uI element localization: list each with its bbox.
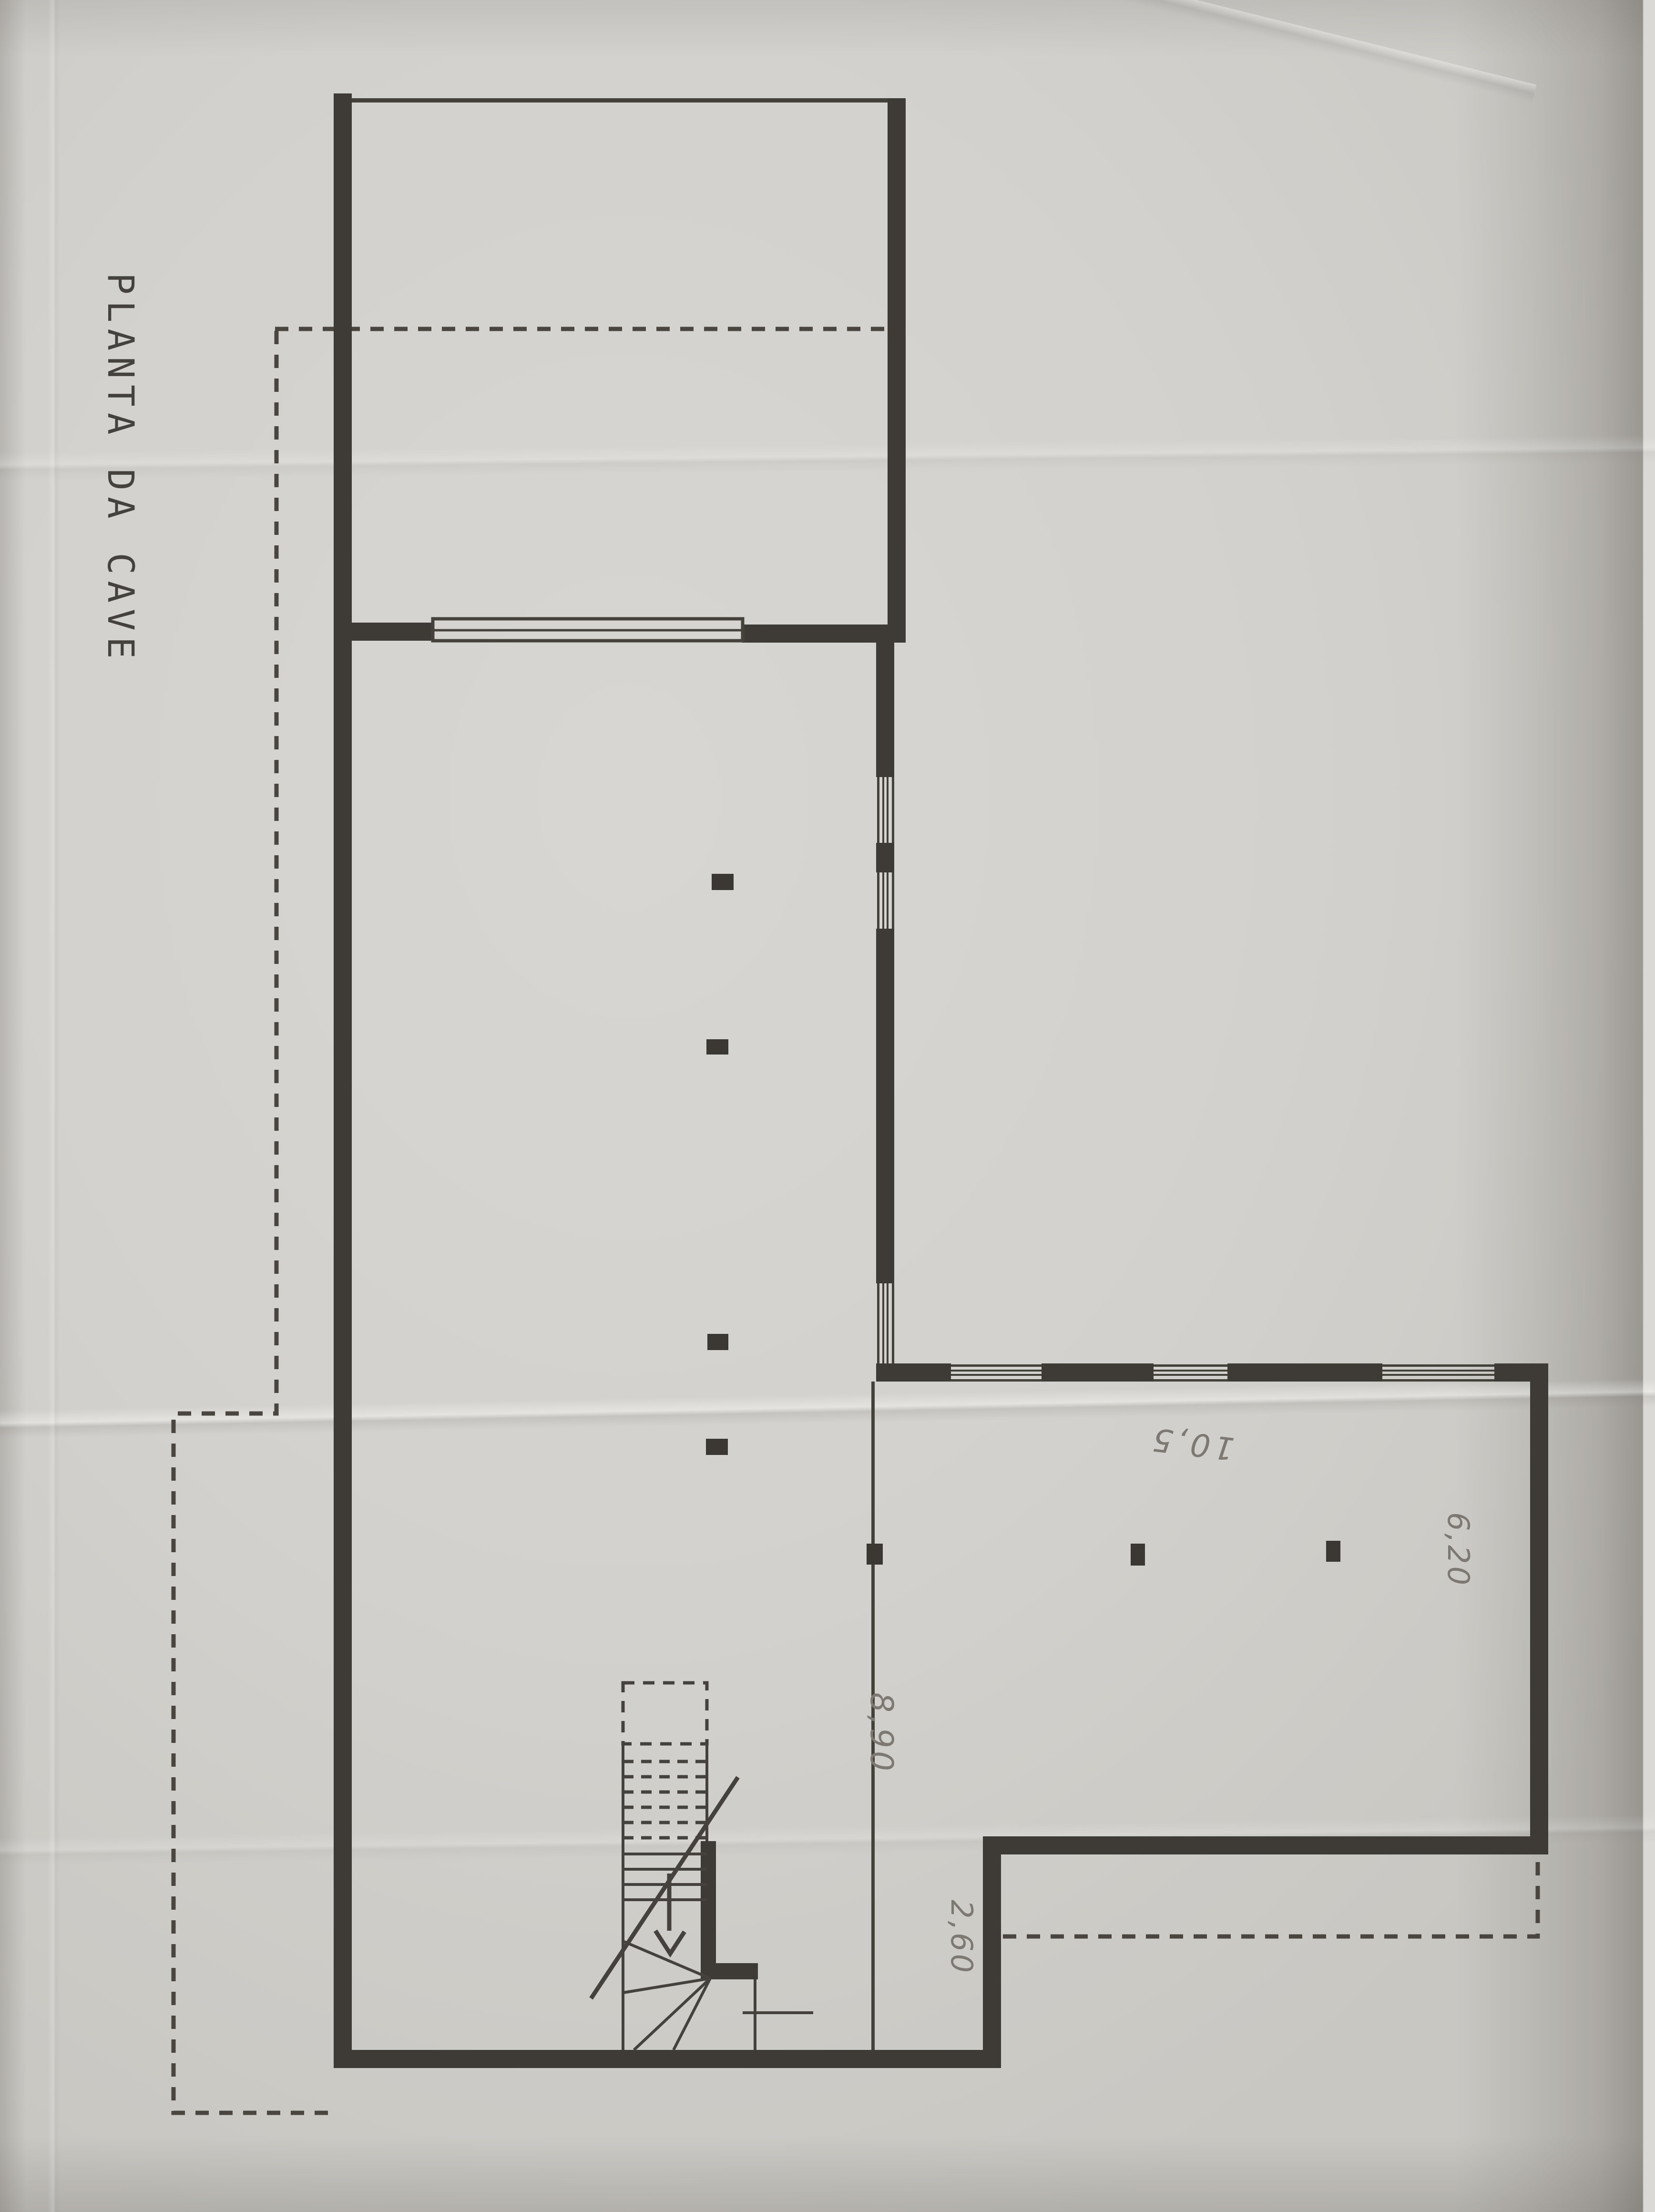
window-mid-right-2 bbox=[877, 872, 894, 929]
columns bbox=[706, 874, 1340, 1566]
stair-treads-dashed bbox=[623, 1761, 707, 1838]
scanned-floor-plan-photo: PLANTA DA CAVE 8,90 2,60 10,5 6,20 bbox=[0, 0, 1655, 2212]
plan-title: PLANTA DA CAVE bbox=[100, 273, 142, 665]
dimension-label-2-60: 2,60 bbox=[944, 1900, 979, 1975]
bottom-wall bbox=[334, 2050, 1001, 2068]
dimension-label-8-90: 8,90 bbox=[863, 1692, 900, 1774]
column bbox=[712, 874, 734, 890]
partition-stub-left bbox=[352, 623, 434, 641]
partition-opening-frame bbox=[433, 619, 743, 641]
stair-winder-treads bbox=[623, 1941, 710, 2050]
wing-top-wall-b bbox=[1042, 1363, 1154, 1382]
wing-right-wall bbox=[1530, 1363, 1548, 1854]
top-wall-thin-line bbox=[334, 98, 906, 102]
dimension-label-6-20: 6,20 bbox=[1441, 1512, 1476, 1587]
wall-mid-right-b bbox=[876, 929, 894, 1283]
walls bbox=[334, 93, 1548, 2068]
stair-return-wall-v bbox=[701, 1841, 716, 1979]
boundary-left-dashed bbox=[174, 331, 332, 2113]
window-wing-1 bbox=[951, 1364, 1042, 1382]
stair-treads-solid bbox=[623, 1854, 707, 1900]
wall-mid-right-pier bbox=[876, 843, 894, 872]
window-wing-2 bbox=[1154, 1364, 1227, 1382]
column bbox=[706, 1439, 728, 1455]
column bbox=[1131, 1544, 1145, 1566]
wall-top-wing-right bbox=[888, 98, 906, 643]
window-mid-right-3 bbox=[877, 1283, 894, 1363]
stair-upper-flight-dashed bbox=[623, 1683, 707, 1744]
column bbox=[867, 1544, 883, 1565]
window-mid-right-1 bbox=[877, 777, 894, 843]
wing-top-wall-a bbox=[876, 1363, 951, 1382]
floor-plan-drawing bbox=[0, 0, 1655, 2212]
wing-bottom-wall bbox=[983, 1836, 1548, 1854]
wall-mid-right-a bbox=[876, 643, 894, 777]
step-wall bbox=[983, 1836, 1001, 2068]
column bbox=[706, 1039, 728, 1055]
window-wing-3 bbox=[1382, 1364, 1494, 1382]
windows bbox=[877, 777, 1494, 1382]
partition-right bbox=[742, 625, 888, 643]
wall-left bbox=[334, 93, 352, 2068]
thin-lines bbox=[334, 98, 906, 2050]
column bbox=[1326, 1541, 1340, 1562]
column bbox=[707, 1334, 728, 1350]
wing-top-wall-c bbox=[1227, 1363, 1382, 1382]
boundary-bottom-right-dashed bbox=[1003, 1856, 1538, 1936]
